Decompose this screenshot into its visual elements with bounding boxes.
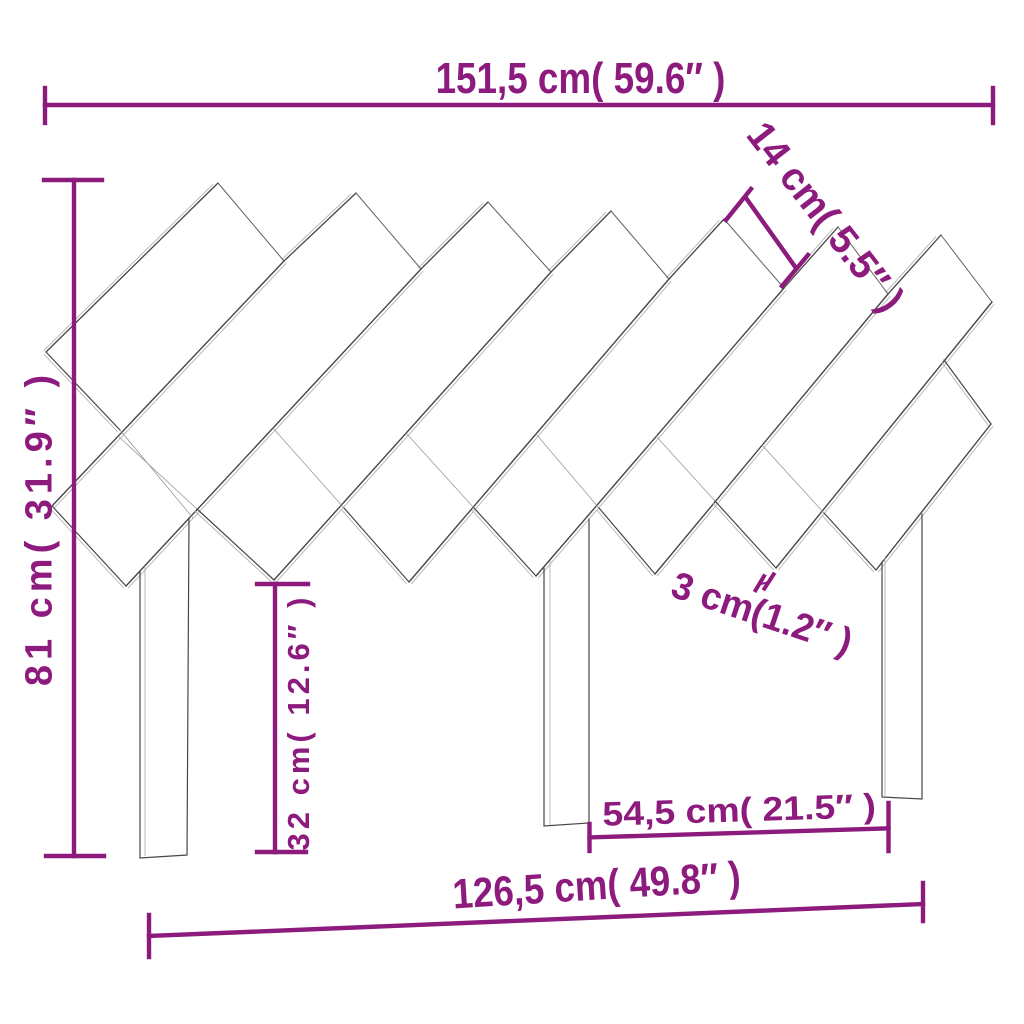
svg-text:81 cm( 31.9″ ): 81 cm( 31.9″ )	[19, 370, 61, 686]
svg-text:151,5 cm( 59.6″ ): 151,5 cm( 59.6″ )	[436, 53, 726, 103]
svg-text:32 cm( 12.6″ ): 32 cm( 12.6″ )	[281, 594, 316, 851]
